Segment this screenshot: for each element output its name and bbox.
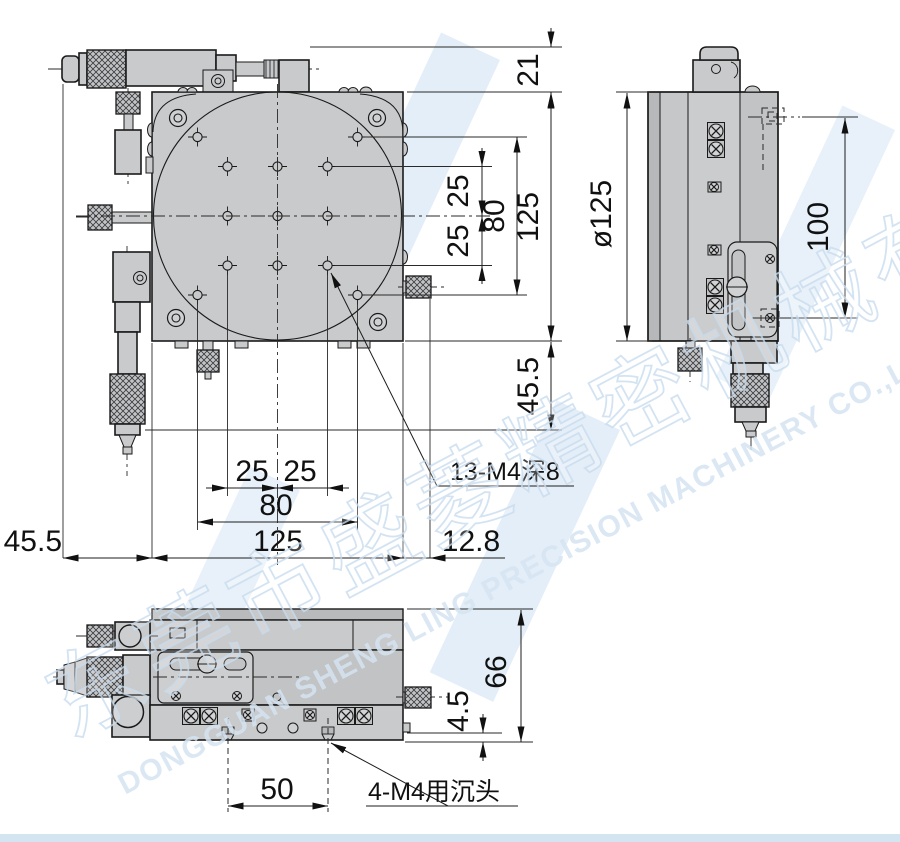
- left-clamp-knob: [76, 205, 162, 230]
- dim-dia125: ø125: [585, 180, 618, 248]
- dim-4-5: 4.5: [442, 690, 475, 732]
- stage-drawing: 21 125 45.5 80 25 25 25 25: [0, 0, 900, 842]
- bottom-circle-block: [112, 695, 150, 737]
- dim-25-h1: 25: [235, 455, 268, 488]
- dim-21: 21: [512, 53, 545, 86]
- bottom-right-knob: [405, 687, 431, 708]
- stage-body-top: [146, 87, 448, 379]
- dim-100: 100: [802, 202, 835, 252]
- bottom-view: [53, 609, 448, 740]
- dim-25-v2: 25: [442, 224, 475, 257]
- dim-12-8: 12.8: [442, 525, 500, 558]
- dim-66: 66: [480, 655, 513, 688]
- corner-screw: [370, 314, 387, 331]
- dim-80-h: 80: [259, 489, 292, 522]
- dim-80-v: 80: [478, 199, 511, 232]
- dim-25-h2: 25: [283, 455, 316, 488]
- x-axis-micrometer: [48, 50, 320, 92]
- countersunk-label: 4-M4用沉头: [368, 778, 500, 806]
- y-fine-adjust-knob: [115, 88, 141, 186]
- dim-45-5-h: 45.5: [4, 525, 62, 558]
- technical-drawing-canvas: 21 125 45.5 80 25 25 25 25: [0, 0, 900, 842]
- dim-50: 50: [260, 773, 293, 806]
- bottom-left-knob-block: [76, 622, 158, 650]
- dim-25-v1: 25: [442, 174, 475, 207]
- y-axis-micrometer: [110, 246, 150, 476]
- bottom-clamp-knob: [197, 350, 219, 372]
- side-micrometer-mount: [693, 47, 760, 92]
- corner-screw: [369, 110, 386, 127]
- side-clamp-knob: [678, 348, 702, 371]
- watermark-bottom-strip: [0, 834, 900, 842]
- corner-screw: [170, 110, 187, 127]
- countersunk-callout: 4-M4用沉头: [331, 743, 518, 806]
- dim-45-5-v: 45.5: [512, 357, 545, 415]
- corner-screw: [168, 310, 185, 327]
- dim-125-h: 125: [253, 525, 303, 558]
- saddle-plate: [158, 652, 253, 703]
- thread-holes-label: 13-M4深8: [450, 458, 560, 486]
- side-view: [648, 47, 800, 450]
